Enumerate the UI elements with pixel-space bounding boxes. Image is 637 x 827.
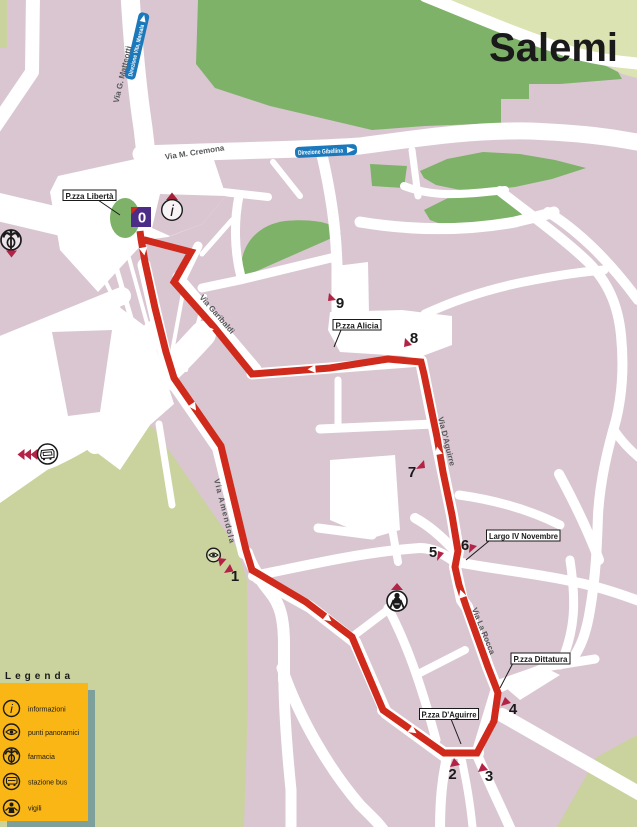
- svg-text:P.zza Alicia: P.zza Alicia: [336, 320, 379, 330]
- svg-text:3: 3: [485, 768, 493, 785]
- svg-text:1: 1: [231, 568, 239, 585]
- svg-text:9: 9: [336, 295, 344, 312]
- svg-text:informazioni: informazioni: [28, 707, 66, 714]
- svg-text:farmacia: farmacia: [28, 754, 55, 761]
- svg-text:7: 7: [408, 464, 416, 481]
- svg-text:i: i: [170, 203, 174, 220]
- svg-text:P.zza Dittatura: P.zza Dittatura: [514, 654, 568, 664]
- svg-text:vigili: vigili: [28, 806, 42, 813]
- svg-text:0: 0: [138, 210, 146, 227]
- svg-text:stazione bus: stazione bus: [28, 780, 68, 787]
- svg-text:punti panoramici: punti panoramici: [28, 730, 80, 737]
- svg-text:Largo IV Novembre: Largo IV Novembre: [489, 532, 558, 541]
- svg-text:P.zza D'Aguirre: P.zza D'Aguirre: [422, 709, 477, 719]
- svg-text:4: 4: [509, 701, 518, 718]
- svg-text:6: 6: [461, 537, 469, 554]
- svg-text:2: 2: [448, 766, 456, 783]
- svg-text:Legenda: Legenda: [5, 671, 74, 682]
- svg-text:i: i: [10, 702, 13, 716]
- svg-text:5: 5: [429, 544, 437, 561]
- svg-text:Salemi: Salemi: [489, 26, 618, 70]
- svg-text:8: 8: [410, 330, 418, 347]
- svg-text:P.zza Libertà: P.zza Libertà: [66, 191, 114, 201]
